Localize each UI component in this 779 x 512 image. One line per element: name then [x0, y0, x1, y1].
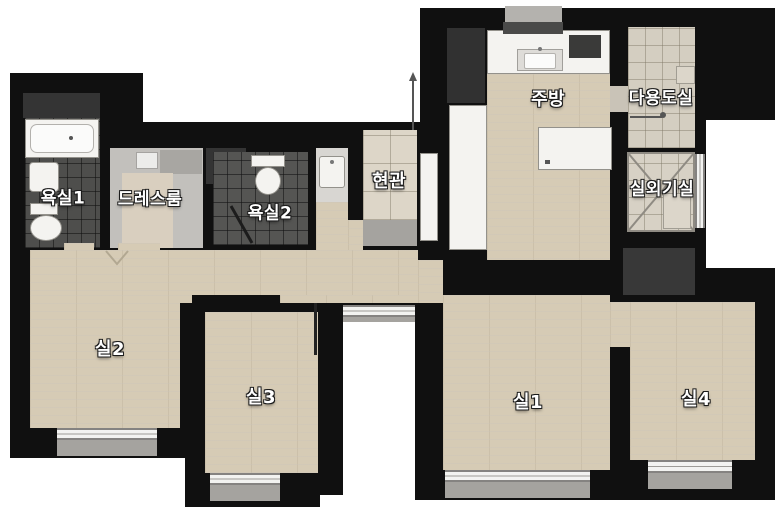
- room-label-outdoor-unit-room: 실외기실: [630, 182, 695, 199]
- room-label-dress-room: 드레스룸: [118, 192, 183, 209]
- living-room-window: [343, 305, 415, 317]
- floor-plan: 욕실1 드레스룸 욕실2 현관 주방 다용도실 실외기실 실2 실3 실1 실4: [0, 0, 779, 512]
- range-hood-icon: [503, 22, 563, 34]
- window-sill: [57, 440, 157, 456]
- exterior-notch: [343, 322, 415, 512]
- entrance-door-swing: [412, 80, 414, 130]
- room-2-floor: [30, 303, 180, 428]
- room-4-window: [648, 460, 732, 473]
- door-opening: [610, 86, 630, 112]
- hallway-floor: [30, 295, 192, 303]
- kitchen-sink-icon: [517, 49, 563, 71]
- door-swing-mark: [104, 250, 130, 266]
- bathtub-icon: [25, 119, 99, 158]
- faucet-icon: [630, 116, 662, 118]
- stove-icon: [569, 35, 601, 58]
- outdoor-unit-room-window: [695, 154, 705, 228]
- entrance-step: [363, 220, 417, 246]
- exterior-recess: [706, 120, 775, 268]
- room-label-bathroom-2: 욕실2: [248, 206, 293, 223]
- room-1-floor: [443, 295, 610, 470]
- window-sill: [343, 317, 415, 322]
- room-label-room-4: 실4: [681, 391, 711, 409]
- door-opening: [610, 302, 630, 347]
- island-table-icon: [538, 127, 612, 170]
- room-label-entrance: 현관: [372, 173, 406, 191]
- room-label-room-2: 실2: [95, 341, 125, 359]
- corridor-floor: [316, 202, 348, 250]
- door-swing-arrow-icon: [409, 72, 417, 81]
- closet-icon: [136, 152, 158, 169]
- toilet-icon: [30, 215, 62, 241]
- closet-icon: [160, 150, 202, 174]
- room-label-kitchen: 주방: [531, 91, 565, 109]
- window-sill: [648, 473, 732, 489]
- toilet-icon: [255, 167, 281, 195]
- washbasin-icon: [319, 156, 345, 188]
- hallway-floor: [30, 250, 418, 295]
- storage-niche: [23, 93, 100, 118]
- door-opening: [348, 220, 363, 250]
- room-1-window: [445, 470, 590, 482]
- tall-cabinet-icon: [420, 153, 438, 241]
- hallway-floor: [280, 295, 418, 303]
- washbasin-icon: [29, 162, 59, 192]
- utility-room-floor: [628, 27, 695, 148]
- living-floor: [418, 260, 443, 303]
- window-sill: [210, 485, 280, 501]
- faucet-icon: [660, 112, 666, 118]
- door-leaf: [314, 303, 317, 355]
- dress-room-center-floor: [122, 173, 173, 248]
- toilet-tank-icon: [251, 155, 285, 167]
- tall-cabinet-icon: [449, 105, 487, 250]
- room-2-window: [57, 428, 157, 440]
- window-sill: [445, 482, 590, 498]
- room-3-window: [210, 473, 280, 485]
- room-label-room-3: 실3: [246, 389, 276, 407]
- room-4-floor: [630, 302, 755, 460]
- room-label-room-1: 실1: [513, 394, 543, 412]
- refrigerator-icon: [447, 28, 485, 103]
- utility-shaft: [623, 248, 695, 295]
- utility-step: [676, 66, 695, 84]
- room-label-utility-room: 다용도실: [629, 91, 694, 108]
- room-label-bathroom-1: 욕실1: [41, 191, 86, 208]
